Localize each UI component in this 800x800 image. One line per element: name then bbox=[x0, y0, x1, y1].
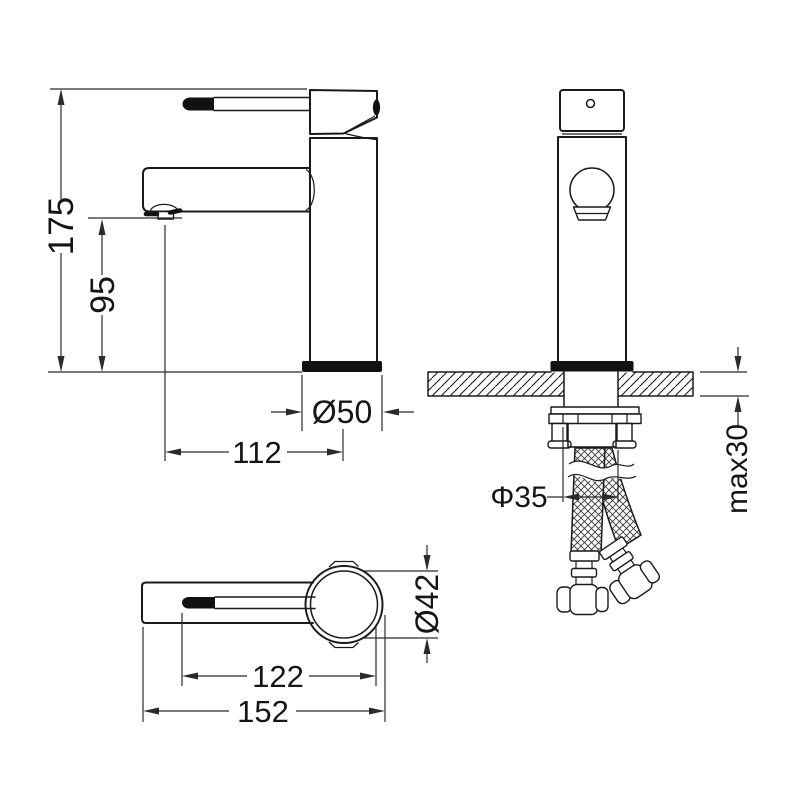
left-hex-lobe bbox=[596, 588, 608, 612]
dim-handle-span-label: 122 bbox=[252, 659, 304, 694]
handle-pivot-screw bbox=[373, 100, 380, 116]
counter-hatch-left bbox=[428, 373, 564, 396]
dim-spout-height: 95 bbox=[84, 218, 182, 372]
faucet-body-side bbox=[310, 138, 377, 361]
aerator-circle bbox=[570, 168, 614, 212]
dim-overall-length-label: 152 bbox=[237, 694, 289, 729]
left-hose-fitting bbox=[557, 551, 608, 615]
shank-sides bbox=[564, 372, 618, 407]
dim-max-thickness-label: max30 bbox=[721, 424, 754, 514]
dim-spout-reach: 112 bbox=[165, 225, 343, 470]
dim-handle-span: 122 bbox=[182, 613, 376, 694]
dim-overall-height-label: 175 bbox=[42, 197, 81, 255]
handle-cap-front bbox=[560, 90, 624, 131]
supply-hoses bbox=[557, 448, 663, 615]
handle-cap-dot bbox=[587, 100, 595, 108]
dim-overall-height: 175 bbox=[42, 89, 307, 372]
handle-head-inner-edge bbox=[346, 116, 375, 132]
side-view: 175 95 Ø50 112 bbox=[42, 89, 414, 470]
lever-lines bbox=[214, 98, 310, 111]
dim-shank-diameter-label: Φ35 bbox=[490, 481, 547, 514]
faucet-body-front bbox=[558, 137, 626, 361]
lever-grip-top-black bbox=[182, 597, 215, 609]
body-outer-circle bbox=[306, 566, 383, 643]
handle-head bbox=[310, 90, 377, 134]
faucet-side-profile bbox=[143, 90, 382, 372]
lever-grip-black bbox=[183, 98, 214, 111]
counter-hatch-right bbox=[618, 373, 693, 396]
dim-base-diameter-label: Ø50 bbox=[312, 394, 372, 430]
base-flange-black bbox=[302, 361, 382, 372]
dim-spout-reach-label: 112 bbox=[232, 435, 281, 470]
shank-lower bbox=[568, 424, 616, 448]
front-view: Φ35 max30 bbox=[428, 90, 754, 615]
faucet-top-profile bbox=[142, 562, 383, 648]
lever-top-inner-lines bbox=[215, 597, 315, 609]
dim-spout-height-label: 95 bbox=[84, 276, 122, 314]
top-view: Ø42 122 152 bbox=[142, 545, 445, 729]
base-flange-black-front bbox=[551, 361, 634, 372]
aerator-accent-right bbox=[170, 211, 180, 213]
countertop bbox=[428, 372, 693, 396]
left-hex-center bbox=[570, 585, 598, 615]
body-inner-circle bbox=[311, 571, 378, 638]
dim-body-diameter-label: Ø42 bbox=[409, 574, 445, 634]
faucet-technical-drawing: 175 95 Ø50 112 bbox=[0, 0, 800, 800]
dim-base-diameter: Ø50 bbox=[271, 375, 414, 431]
lever-top-outline bbox=[142, 583, 313, 624]
mounting-washer bbox=[551, 407, 639, 414]
dim-max-thickness: max30 bbox=[700, 347, 754, 514]
faucet-front-profile bbox=[551, 90, 634, 372]
